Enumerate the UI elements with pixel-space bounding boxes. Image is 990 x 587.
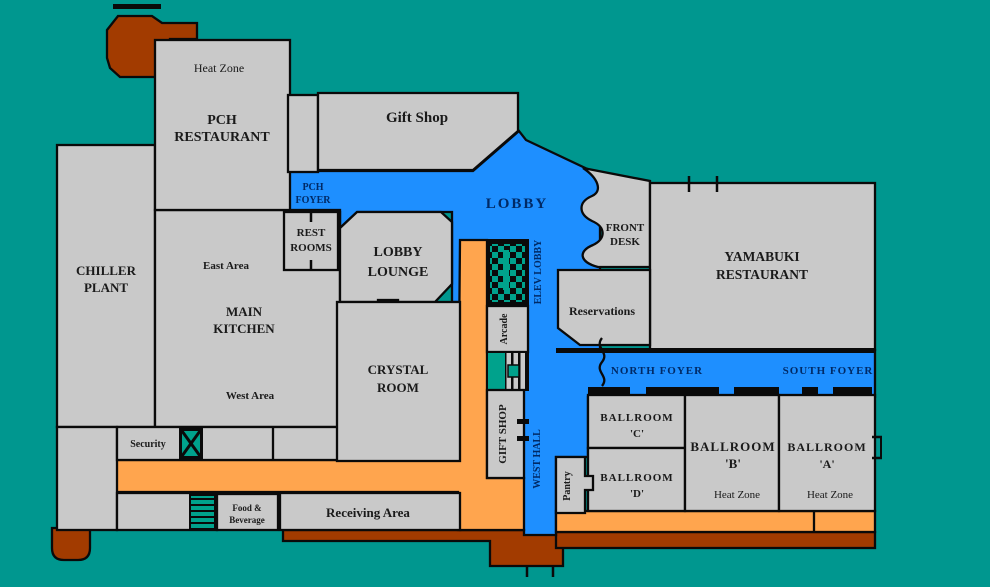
room-gift-shop-top	[318, 93, 518, 170]
label-pch-foyer-2: FOYER	[296, 195, 332, 206]
label-ballroom-b-1: BALLROOM	[690, 439, 775, 454]
escalator-step-icon	[508, 365, 519, 377]
label-rest-rooms-1: REST	[297, 227, 326, 239]
label-lobby-lounge-2: LOUNGE	[368, 265, 429, 280]
door-lintel-c	[588, 387, 630, 396]
label-heat-zone-b: Heat Zone	[714, 489, 760, 501]
label-rest-rooms-2: ROOMS	[290, 242, 332, 254]
label-lobby-lounge-1: LOBBY	[373, 245, 422, 260]
label-main-kitchen-1: MAIN	[226, 304, 263, 319]
label-receiving: Receiving Area	[326, 505, 410, 520]
door-tick-westhall-1	[517, 419, 529, 424]
label-west-hall: WEST HALL	[532, 429, 543, 489]
label-security: Security	[130, 439, 166, 450]
label-ballroom-d-1: BALLROOM	[600, 472, 673, 484]
service-strip-bottom-right	[556, 532, 875, 548]
label-front-desk-1: FRONT	[606, 222, 645, 234]
label-pantry: Pantry	[562, 471, 573, 500]
label-pch-restaurant-1: PCH	[207, 113, 237, 128]
room-back-strip	[288, 95, 318, 172]
label-heat-zone-a: Heat Zone	[807, 489, 853, 501]
service-strip-bottom-left	[283, 530, 563, 566]
stairs-icon	[190, 495, 215, 530]
label-front-desk-2: DESK	[610, 236, 640, 248]
label-south-foyer: SOUTH FOYER	[783, 365, 874, 377]
label-ballroom-d-2: 'D'	[630, 488, 644, 500]
label-yamabuki-2: RESTAURANT	[716, 267, 808, 282]
label-ballroom-c-2: 'C'	[630, 428, 644, 440]
door-tick-westhall-2	[517, 436, 529, 441]
label-reservations: Reservations	[569, 304, 635, 318]
door-lintel-b1	[646, 387, 719, 396]
door-lintel-a2	[833, 387, 872, 396]
service-tab-bottom-left	[52, 528, 90, 560]
elevator-bank-bar	[503, 250, 509, 290]
roof-vent-line	[113, 4, 161, 9]
label-arcade: Arcade	[499, 313, 510, 344]
label-pch-foyer-1: PCH	[302, 182, 323, 193]
door-lintel-a1	[802, 387, 818, 396]
label-ballroom-a-1: BALLROOM	[787, 440, 866, 454]
label-food-bev-1: Food &	[232, 503, 262, 513]
label-lobby: LOBBY	[486, 196, 549, 212]
label-yamabuki-1: YAMABUKI	[724, 249, 799, 264]
label-gift-shop: Gift Shop	[386, 110, 448, 126]
label-elev-lobby: ELEV LOBBY	[533, 239, 544, 304]
label-ballroom-a-2: 'A'	[819, 457, 834, 471]
label-chiller-2: PLANT	[84, 280, 128, 295]
label-gift-shop-v: GIFT SHOP	[497, 404, 509, 464]
label-heat-zone-pch: Heat Zone	[194, 61, 244, 75]
label-main-kitchen-2: KITCHEN	[213, 321, 275, 336]
room-left-foot	[57, 427, 117, 530]
floor-plan-stage: Heat Zone PCH RESTAURANT Gift Shop CHILL…	[0, 0, 990, 587]
label-ballroom-b-2: 'B'	[725, 456, 741, 471]
label-crystal-2: ROOM	[377, 380, 419, 395]
label-pch-restaurant-2: RESTAURANT	[174, 130, 270, 145]
label-crystal-1: CRYSTAL	[368, 362, 429, 377]
label-east-area: East Area	[203, 260, 249, 272]
label-chiller-1: CHILLER	[76, 263, 137, 278]
door-lintel-b2	[734, 387, 779, 396]
label-food-bev-2: Beverage	[229, 515, 264, 525]
corridor-south	[556, 511, 875, 532]
label-north-foyer: NORTH FOYER	[611, 365, 703, 377]
label-ballroom-c-1: BALLROOM	[600, 412, 673, 424]
label-west-area: West Area	[226, 390, 275, 402]
floor-plan-svg: Heat Zone PCH RESTAURANT Gift Shop CHILL…	[0, 0, 990, 587]
